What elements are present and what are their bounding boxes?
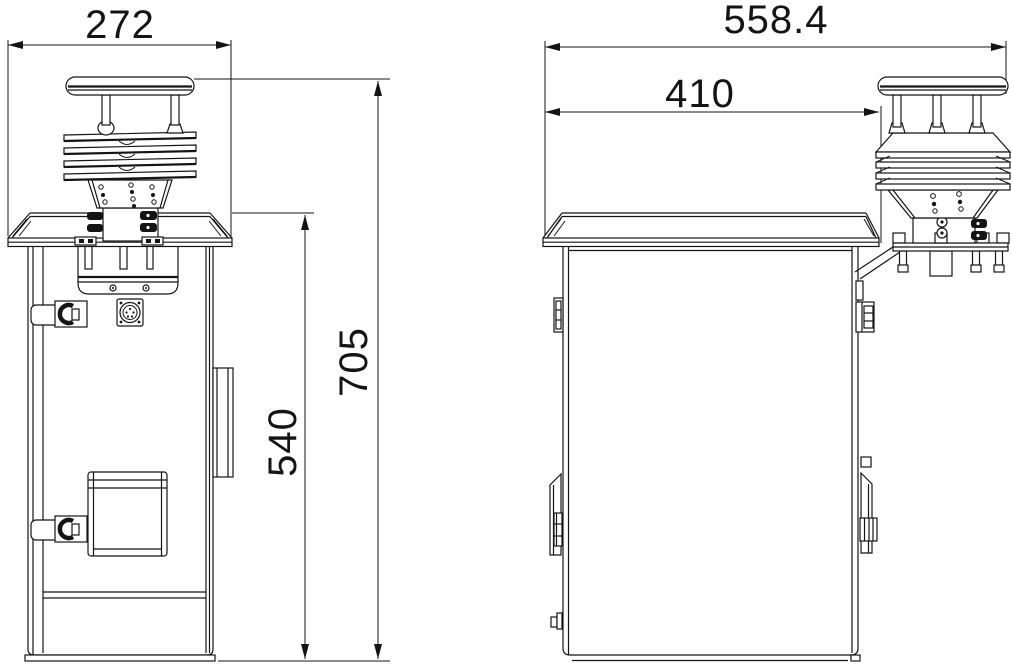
bottom-knob-side xyxy=(551,613,562,629)
dim-front-cabinet-height-label: 540 xyxy=(261,407,305,477)
arrowhead xyxy=(545,43,560,51)
hinge-bar xyxy=(856,281,863,300)
cap-post xyxy=(102,95,110,125)
bolt-head xyxy=(994,265,1004,272)
base-plate xyxy=(25,655,215,661)
side-view: 558.4 410 xyxy=(543,0,1010,661)
screw-dot xyxy=(112,287,114,289)
vent-hole xyxy=(958,200,962,204)
roof-hatch xyxy=(13,219,27,236)
arrowhead xyxy=(301,644,309,659)
bracket-tab xyxy=(147,246,153,269)
roof-chamfer xyxy=(8,213,30,238)
dim-side-total-width-label: 558.4 xyxy=(723,0,828,42)
louver-band xyxy=(876,152,1010,158)
louver-band xyxy=(876,173,1010,179)
plate-bolt xyxy=(971,251,981,272)
dim-side-cabinet-width-label: 410 xyxy=(665,72,735,116)
cap-post xyxy=(171,95,179,125)
vent-hole xyxy=(130,190,134,194)
core-arc xyxy=(119,167,135,171)
vent-hole xyxy=(101,193,105,197)
side-rail xyxy=(213,368,233,477)
hinge-hardware-upper-side xyxy=(856,281,874,332)
connector-screw xyxy=(138,321,141,324)
hinge-stop xyxy=(861,457,871,467)
plate-nut xyxy=(997,233,1009,243)
cap-post xyxy=(933,95,941,127)
cap-post xyxy=(973,95,981,127)
roof-chamfer xyxy=(866,217,876,239)
roof-chamfer xyxy=(210,213,232,238)
louver-band xyxy=(876,162,1010,168)
roof-chamfer xyxy=(543,213,562,238)
side-rail-body xyxy=(213,368,233,477)
mount-stub xyxy=(930,251,952,276)
arrowhead xyxy=(216,41,231,49)
dim-front-width-label: 272 xyxy=(85,3,155,47)
dim-side-cabinet-width: 410 xyxy=(545,72,881,243)
bracket-body xyxy=(78,244,178,294)
bracket-tab xyxy=(85,246,92,269)
hinge-hardware-lower-side xyxy=(860,457,877,553)
arrowhead xyxy=(864,108,879,116)
vent-hole xyxy=(151,193,155,197)
cap-post xyxy=(893,95,901,127)
core-arc xyxy=(119,141,135,145)
hex-nut-dot xyxy=(940,231,943,234)
connector-screw xyxy=(120,321,123,324)
plate-bolt xyxy=(994,251,1004,272)
mount-bolt xyxy=(87,212,103,220)
keeper-strip xyxy=(554,513,562,546)
louver-top-plate xyxy=(876,133,1010,152)
arrowhead xyxy=(374,644,382,659)
louver-band xyxy=(876,184,1010,190)
anemometer-side xyxy=(876,77,1010,276)
arrowhead xyxy=(8,41,23,49)
base-foot xyxy=(851,655,860,661)
mount-bracket-front xyxy=(78,244,178,294)
anemometer-front xyxy=(64,77,196,245)
connector-screw xyxy=(120,302,123,305)
latch-keeper-lower-side xyxy=(550,474,562,555)
door-latch-upper xyxy=(31,301,87,327)
bolt-highlight xyxy=(976,234,979,237)
dim-front-cabinet-height: 540 xyxy=(232,213,314,659)
plate-bolt xyxy=(898,251,908,272)
connector-pin xyxy=(132,311,134,313)
connector-pin xyxy=(131,315,133,317)
screw-dot xyxy=(145,287,147,289)
cabinet-body xyxy=(563,246,858,655)
bolt-highlight xyxy=(146,214,149,217)
latch-keeper-upper-side xyxy=(554,298,563,332)
bolt-head xyxy=(971,265,981,272)
arrowhead xyxy=(301,215,309,230)
bracket-tab xyxy=(120,246,127,269)
bolt-highlight xyxy=(146,226,149,229)
keeper-strip xyxy=(556,301,561,329)
drawing-canvas: 272 705 540 xyxy=(0,0,1012,672)
latch-slot xyxy=(72,309,79,320)
front-view: 272 705 540 xyxy=(8,3,390,661)
hex-nut-dot xyxy=(940,220,943,223)
roof-hatch xyxy=(548,219,561,236)
foot-bolt xyxy=(88,239,93,243)
foot-bolt xyxy=(146,239,151,243)
roof-hatch xyxy=(213,219,227,236)
mount-bolt xyxy=(87,224,103,232)
core-arc xyxy=(119,154,135,158)
arrowhead xyxy=(374,81,382,96)
knob-flange xyxy=(557,613,562,629)
vent-hole xyxy=(132,204,136,208)
bolt-highlight xyxy=(976,222,979,225)
radiation-shield-side xyxy=(876,133,1010,190)
sensor-base-trapezoid xyxy=(88,180,172,208)
door-latch-lower xyxy=(31,516,87,542)
cabinet-side xyxy=(550,246,877,661)
connector-pin xyxy=(127,315,129,317)
technical-drawing: 272 705 540 xyxy=(0,0,1012,672)
roof-chamfer xyxy=(12,217,30,239)
vent-panel xyxy=(88,472,167,556)
plate-nut xyxy=(893,233,905,243)
bolt-head xyxy=(898,265,908,272)
foot-bolt xyxy=(79,239,84,243)
vent-hole xyxy=(932,202,936,206)
connector-screw xyxy=(138,302,141,305)
dim-front-total-height-label: 705 xyxy=(332,327,376,397)
circular-connector xyxy=(117,299,143,326)
latch-slot xyxy=(72,524,79,535)
arrowhead xyxy=(545,108,560,116)
roof-chamfer xyxy=(210,217,228,239)
connector-pin xyxy=(129,308,131,310)
knob-stem xyxy=(551,617,557,627)
radiation-shield-front xyxy=(64,132,196,180)
foot-bolt xyxy=(155,239,160,243)
vent-panel-frame xyxy=(88,472,167,556)
roof-hatch xyxy=(554,221,565,236)
roof-side xyxy=(543,213,879,247)
arrowhead xyxy=(991,43,1006,51)
connector-pin xyxy=(125,311,127,313)
hinge-knuckle xyxy=(864,306,873,328)
